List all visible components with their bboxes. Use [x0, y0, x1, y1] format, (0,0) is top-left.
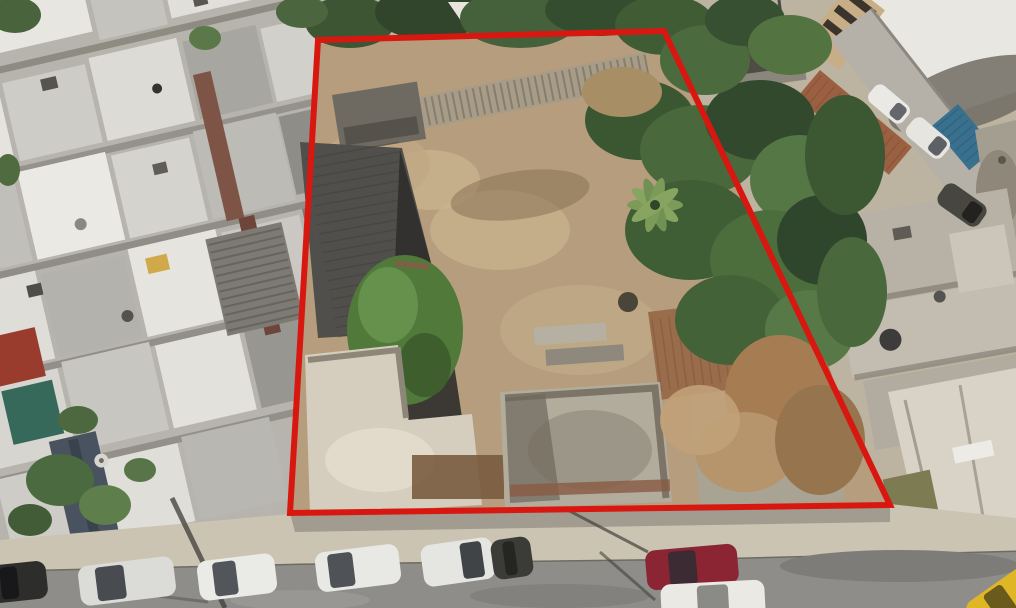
debris-pile — [618, 292, 638, 312]
aerial-photo — [0, 0, 1016, 608]
roofless-room-right — [500, 382, 672, 508]
parked-car-dark-pickup — [489, 535, 534, 580]
rust-wall — [412, 455, 504, 499]
aerial-photo-scene — [0, 0, 1016, 608]
parked-car-dark-hatchback — [0, 560, 49, 604]
